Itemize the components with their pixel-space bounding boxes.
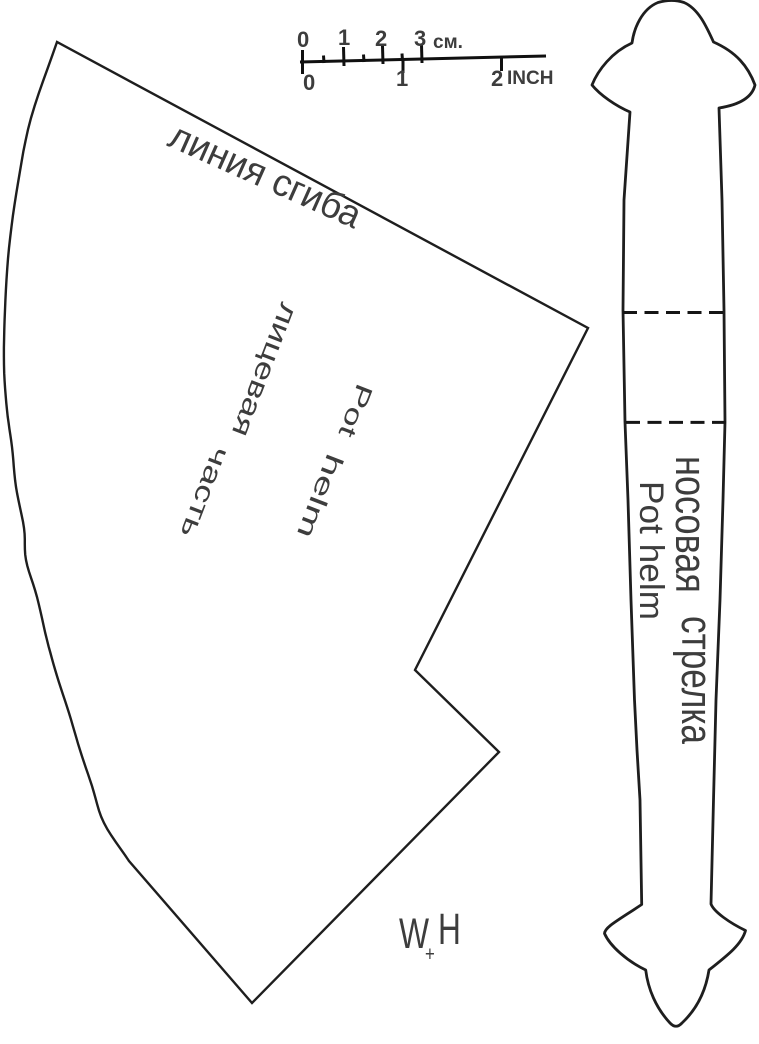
svg-text:см.: см.	[433, 32, 463, 53]
svg-text:носовая: носовая	[666, 456, 715, 593]
svg-text:+: +	[425, 943, 435, 966]
svg-text:H: H	[438, 905, 461, 954]
svg-text:2: 2	[375, 26, 387, 51]
svg-text:INCH: INCH	[507, 68, 553, 89]
svg-text:1: 1	[338, 25, 350, 50]
svg-text:2: 2	[491, 66, 503, 91]
svg-text:Pot helm: Pot helm	[632, 481, 670, 620]
svg-text:0: 0	[297, 27, 309, 52]
svg-text:1: 1	[396, 66, 408, 91]
svg-text:0: 0	[303, 70, 315, 95]
svg-text:3: 3	[414, 26, 426, 51]
svg-text:стрелка: стрелка	[672, 616, 721, 744]
